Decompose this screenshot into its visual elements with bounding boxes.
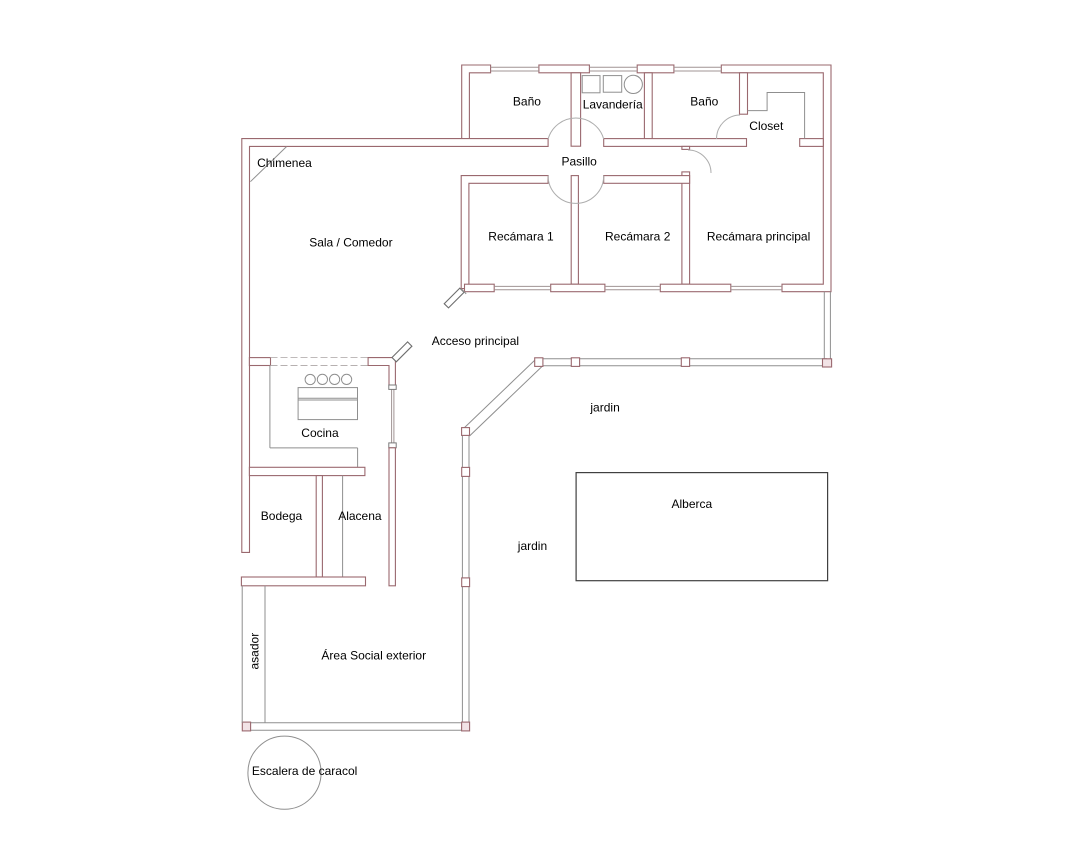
svg-text:Recámara principal: Recámara principal <box>707 229 810 243</box>
svg-text:Alberca: Alberca <box>672 497 713 511</box>
svg-text:jardin: jardin <box>589 401 619 415</box>
svg-text:Closet: Closet <box>749 119 784 133</box>
svg-text:Chimenea: Chimenea <box>257 156 312 170</box>
svg-text:Lavandería: Lavandería <box>583 98 643 112</box>
svg-text:Cocina: Cocina <box>301 426 339 440</box>
svg-text:jardin: jardin <box>517 539 547 553</box>
svg-text:Baño: Baño <box>513 94 541 108</box>
svg-text:Acceso principal: Acceso principal <box>432 334 519 348</box>
svg-text:Área Social exterior: Área Social exterior <box>321 648 426 663</box>
svg-text:Baño: Baño <box>690 95 718 109</box>
svg-text:Bodega: Bodega <box>261 509 303 523</box>
svg-text:Escalera de caracol: Escalera de caracol <box>252 764 357 778</box>
svg-text:Recámara 1: Recámara 1 <box>488 229 554 243</box>
svg-text:Alacena: Alacena <box>338 509 382 523</box>
svg-text:Sala / Comedor: Sala / Comedor <box>309 236 392 250</box>
svg-text:Pasillo: Pasillo <box>562 155 598 169</box>
svg-text:asador: asador <box>248 633 262 670</box>
svg-text:Recámara 2: Recámara 2 <box>605 229 671 243</box>
